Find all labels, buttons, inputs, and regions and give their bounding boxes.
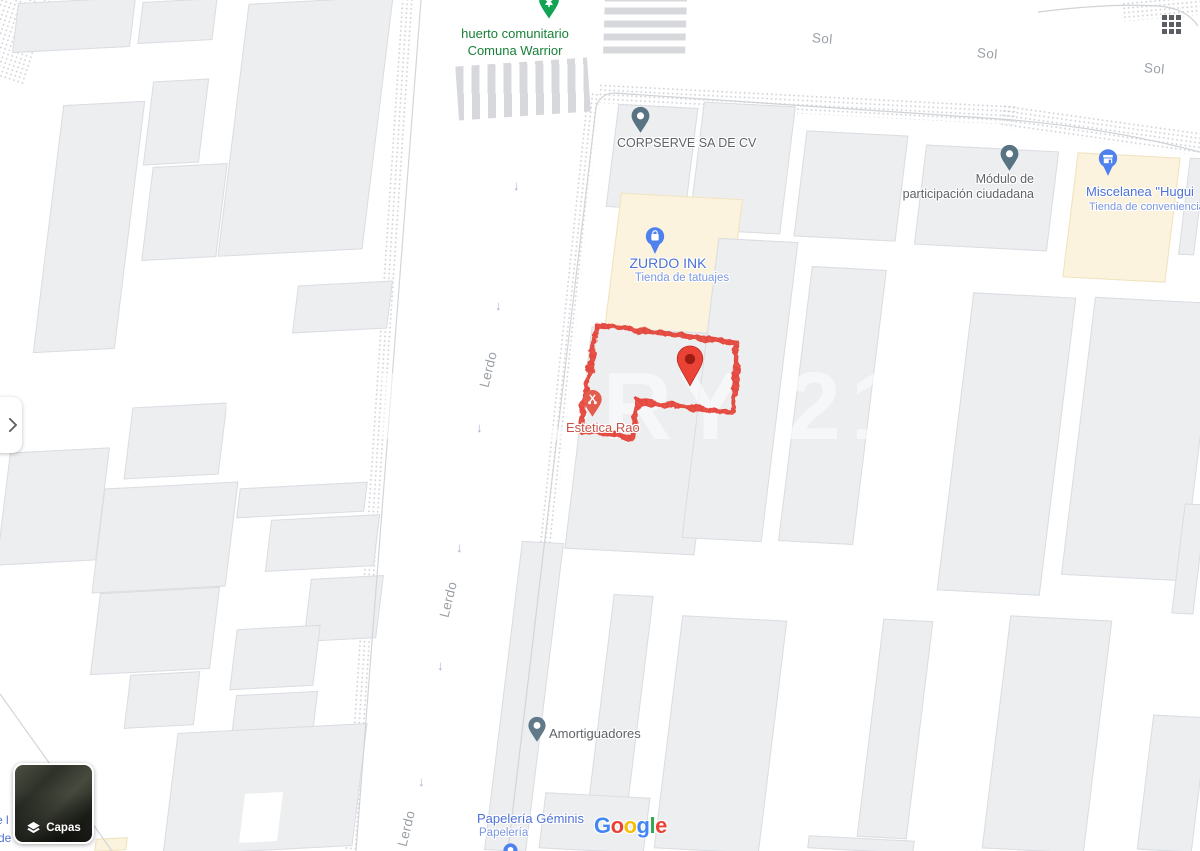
one-way-arrow-icon: ↓ (495, 298, 502, 313)
poi-label-modulo[interactable]: Módulo de participación ciudadana (870, 172, 1034, 202)
generic-poi-pin-icon[interactable] (999, 144, 1020, 172)
poi-label-corpserve[interactable]: CORPSERVE SA DE CV (617, 136, 756, 150)
building (857, 619, 934, 840)
poi-building (94, 837, 128, 851)
park-pin-icon[interactable] (537, 0, 561, 20)
building (92, 481, 239, 593)
building (217, 0, 393, 257)
poi-sublabel-miscelanea: Tienda de conveniencia (1089, 201, 1200, 213)
building (236, 482, 368, 519)
generic-poi-pin-icon[interactable] (630, 106, 651, 134)
side-panel-toggle-button[interactable] (0, 397, 22, 453)
building (292, 281, 393, 334)
poi-label-papeleria[interactable]: Papelería Géminis (477, 811, 584, 826)
google-logo-letter: e (655, 813, 667, 838)
crosswalk (603, 0, 687, 59)
poi-label-zurdo[interactable]: ZURDO INK (600, 255, 736, 271)
map-canvas[interactable]: CENTURY 21 ↓ ↓ ↓ ↓ ↓ ↓ Sol Sol Sol Lerdo… (0, 0, 1200, 851)
chevron-right-icon (8, 418, 17, 432)
store-pin-icon (502, 842, 519, 851)
building (229, 625, 320, 690)
poi-label-miscelanea[interactable]: Miscelanea "Hugui (1086, 184, 1194, 199)
shopping-pin-icon[interactable] (644, 226, 666, 256)
building (654, 615, 788, 851)
poi-building (1062, 152, 1180, 282)
one-way-arrow-icon: ↓ (437, 658, 444, 673)
poi-label-estetica[interactable]: Estetica Rao (566, 420, 640, 435)
building (143, 79, 209, 166)
one-way-arrow-icon: ↓ (456, 540, 463, 555)
building (265, 514, 380, 572)
one-way-arrow-icon: ↓ (418, 774, 425, 789)
building (0, 447, 110, 565)
clipped-poi-label: e l (0, 813, 9, 827)
building (33, 101, 145, 353)
poi-label-line: huerto comunitario (461, 26, 569, 41)
map-marker[interactable] (676, 345, 704, 387)
courtyard (239, 792, 283, 843)
building (1061, 297, 1200, 581)
store-pin-icon[interactable] (1097, 148, 1119, 178)
google-logo[interactable]: Google (594, 813, 667, 839)
beauty-salon-pin-icon[interactable] (582, 389, 603, 418)
street-label-lerdo: Lerdo (395, 809, 418, 848)
building (137, 0, 217, 44)
building (141, 163, 228, 261)
one-way-arrow-icon: ↓ (513, 178, 520, 193)
poi-label-line: participación ciudadana (903, 187, 1034, 201)
poi-sublabel-papeleria: Papelería (479, 827, 528, 839)
building (90, 587, 220, 675)
building (982, 615, 1113, 851)
one-way-arrow-icon: ↓ (476, 420, 483, 435)
apps-grid-icon[interactable] (1162, 15, 1181, 34)
poi-label-huerto[interactable]: huerto comunitario Comuna Warrior (440, 26, 590, 60)
google-logo-letter: G (594, 813, 611, 838)
street-label-sol: Sol (811, 30, 833, 47)
sidewalk-texture (1121, 0, 1200, 22)
layers-button-label: Capas (46, 822, 81, 834)
google-logo-letter: o (611, 813, 624, 838)
street-label-sol: Sol (1143, 60, 1165, 77)
crosswalk (455, 57, 590, 120)
poi-sublabel-zurdo: Tienda de tatuajes (612, 272, 752, 284)
google-logo-letter: o (624, 813, 637, 838)
generic-poi-pin-icon[interactable] (527, 716, 547, 743)
poi-label-line: Módulo de (976, 172, 1034, 186)
layers-icon (26, 820, 41, 835)
street-label-lerdo: Lerdo (437, 580, 460, 619)
building (12, 0, 136, 53)
layers-button[interactable]: Capas (13, 763, 94, 844)
google-logo-letter: g (637, 813, 650, 838)
poi-label-amortiguadores[interactable]: Amortiguadores (549, 726, 641, 741)
clipped-poi-label: de (0, 831, 11, 845)
poi-label-line: Comuna Warrior (468, 43, 563, 58)
building (124, 671, 201, 729)
building (1137, 715, 1200, 851)
building (124, 403, 228, 480)
street-label-sol: Sol (976, 45, 998, 62)
